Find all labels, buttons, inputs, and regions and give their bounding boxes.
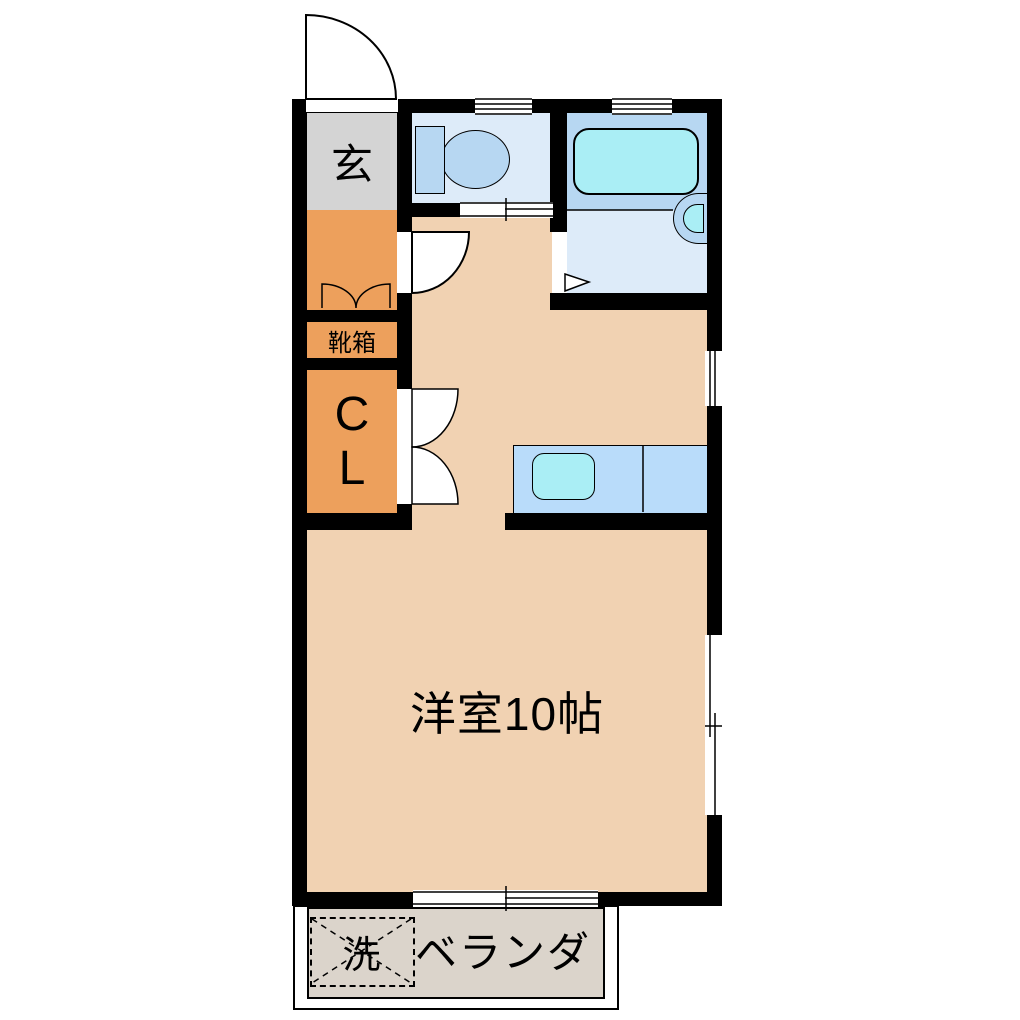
entrance-label: 玄 [331,131,373,192]
closet-label-line2: L [339,442,366,496]
washing-machine-label: 洗 [310,917,413,985]
main-room-label: 洋室10帖 [307,530,707,892]
bathroom-door-opening [552,232,567,293]
toilet-bowl-icon [441,130,510,189]
closet-door-opening [397,389,412,504]
wall-below-closet [292,513,412,530]
floor-plan: 洗 ベランダ 玄 靴箱 C L [0,0,1020,1020]
entrance-storage [307,210,397,310]
wall-below-entrance [292,310,412,322]
wall-left [292,99,307,906]
shoe-box: 靴箱 [307,322,397,358]
veranda-label: ベランダ [413,907,593,991]
closet: C L [307,370,397,513]
closet-label-line1: C [335,388,370,442]
bathtub-icon [573,128,699,195]
toilet-tank-icon [415,126,445,194]
wall-below-bathroom [550,293,722,310]
hall-door-opening [397,232,412,293]
washbasin-bowl-icon [683,204,704,233]
window-bathroom-top [612,97,672,115]
entrance-door-opening [306,99,398,113]
wall-below-toilet [412,203,460,217]
window-right-small [705,351,722,406]
kitchen-sink-icon [532,453,595,500]
toilet-sliding-door [460,202,553,218]
wall-below-shoebox [292,358,412,370]
window-toilet-top [475,97,532,115]
veranda-sliding-door [413,890,598,907]
window-right-large [705,635,722,815]
entrance-room: 玄 [307,113,397,210]
shoe-box-label: 靴箱 [328,323,376,358]
wall-below-kitchen [505,513,722,530]
entrance-door-arc [306,15,396,99]
